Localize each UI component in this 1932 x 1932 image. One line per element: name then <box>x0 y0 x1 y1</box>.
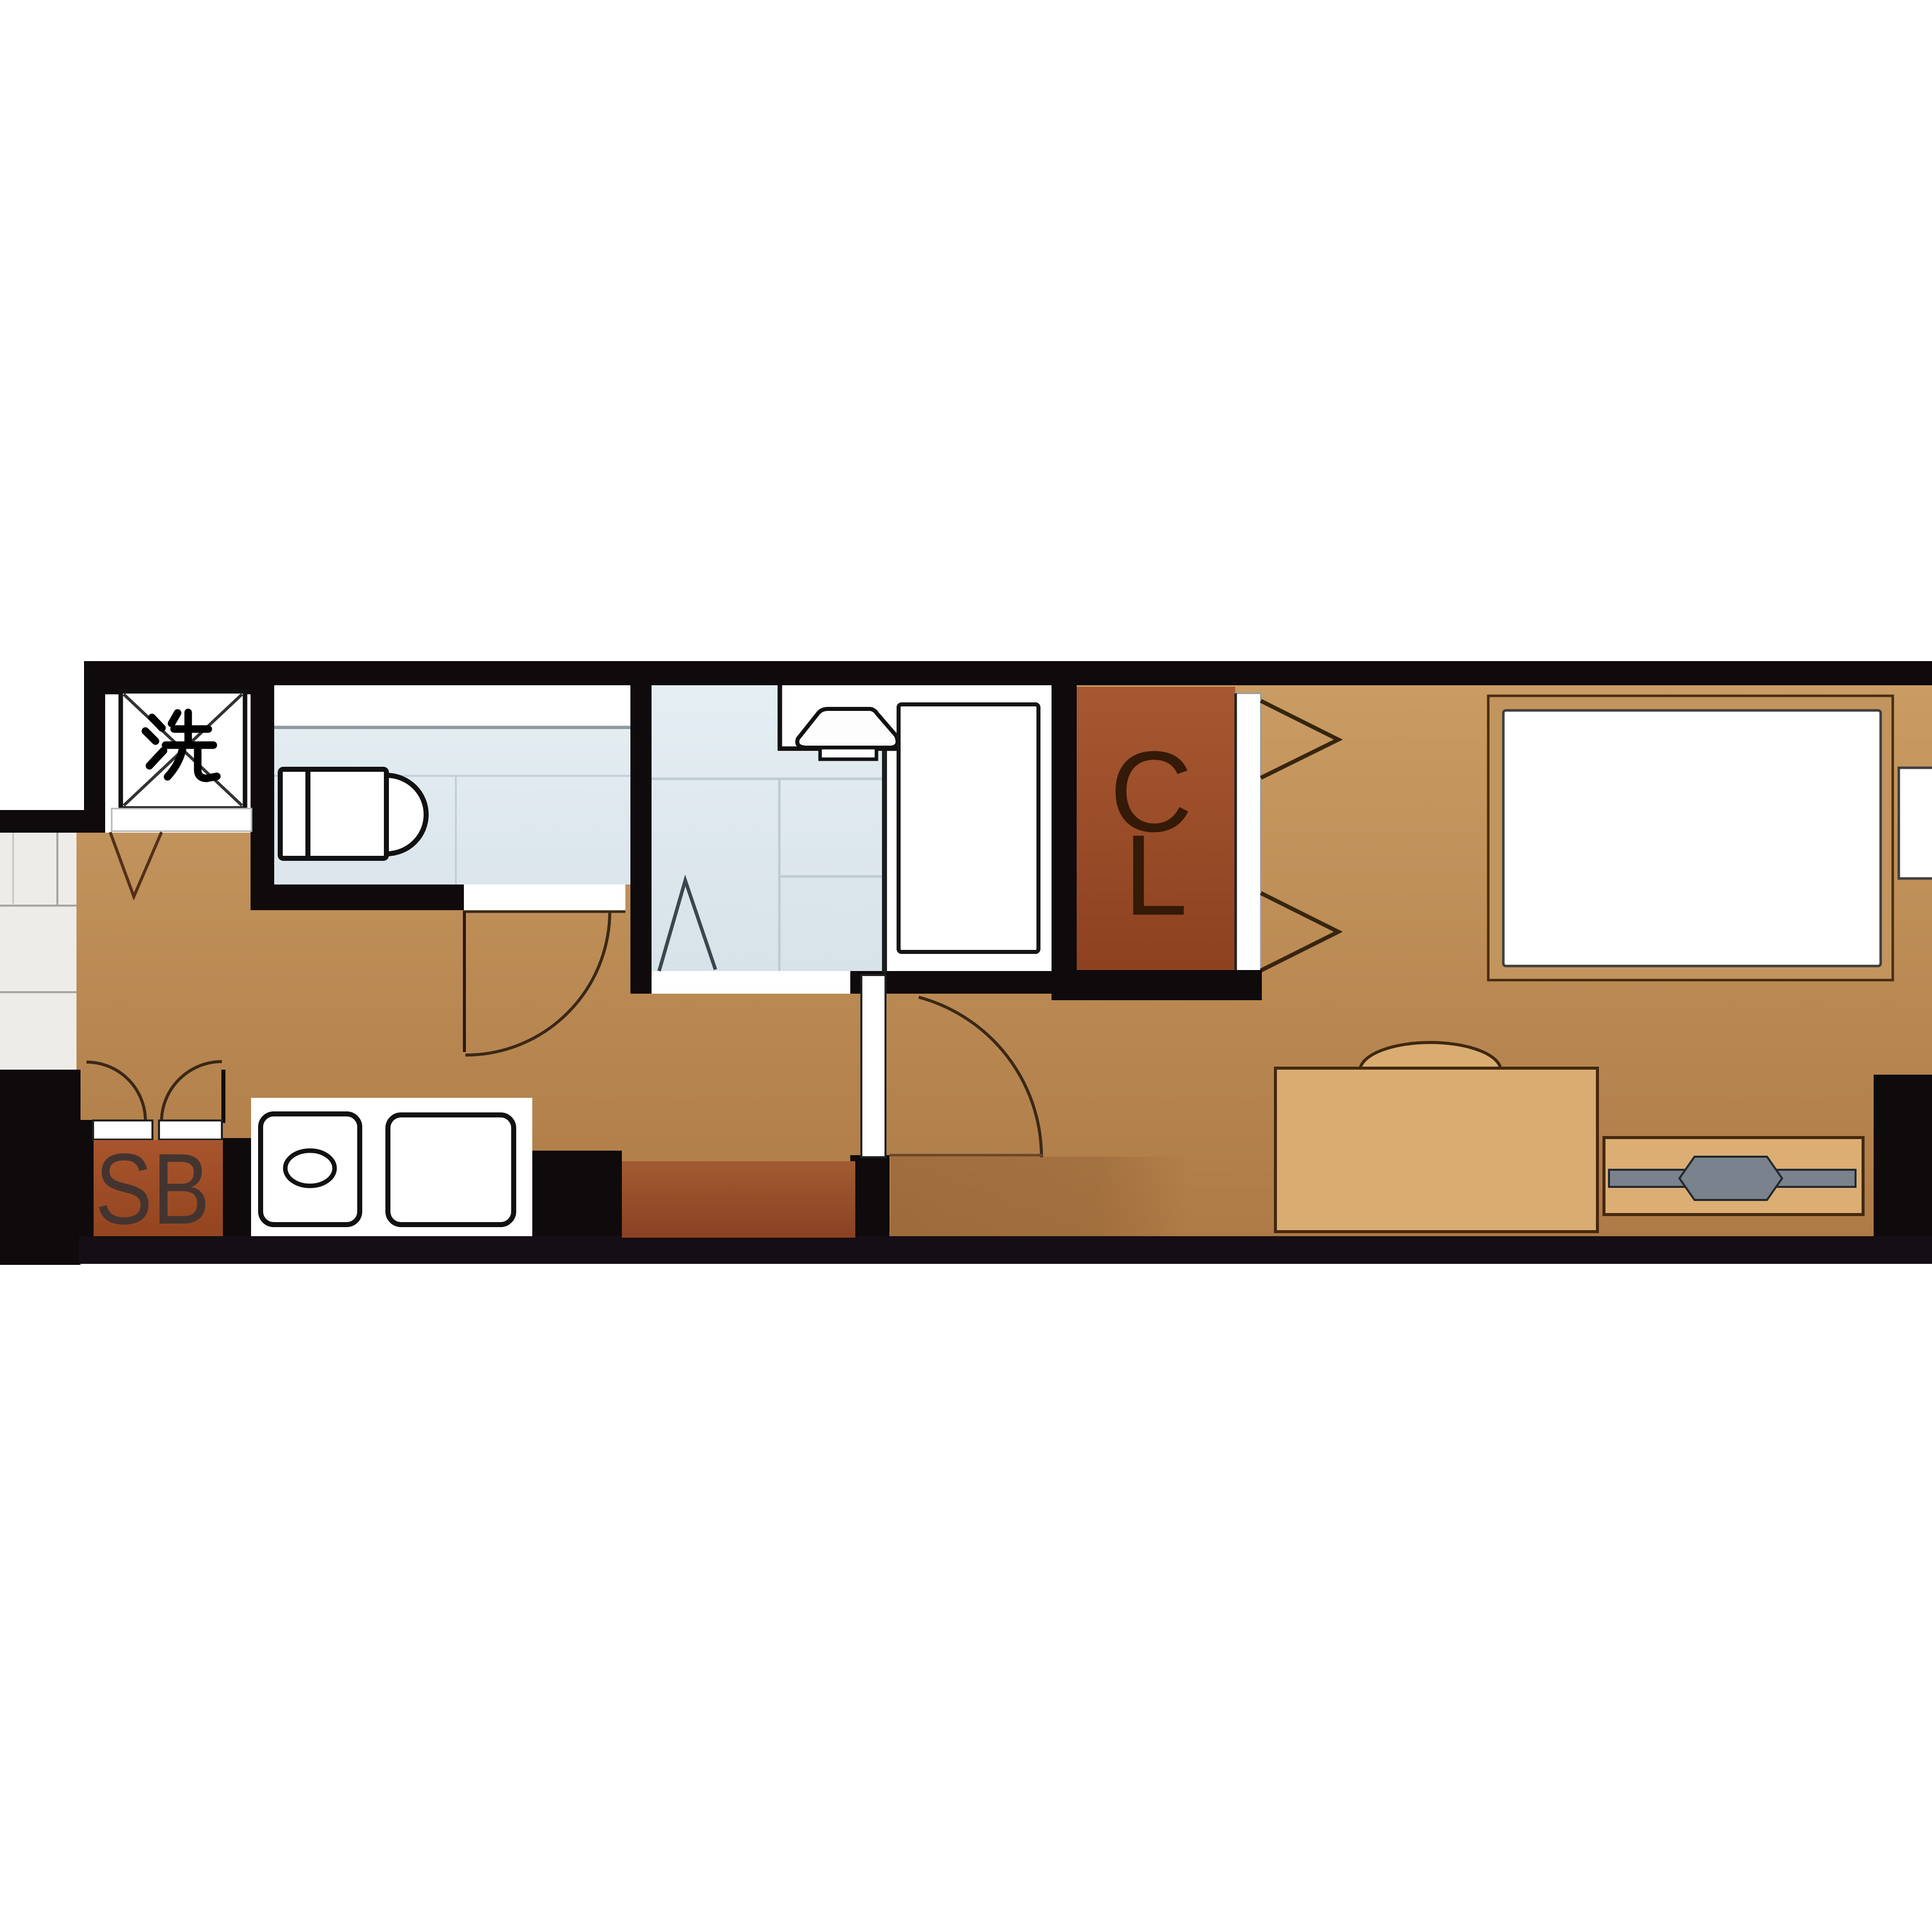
svg-text:L: L <box>1124 812 1188 939</box>
svg-text:SB: SB <box>95 1133 210 1245</box>
